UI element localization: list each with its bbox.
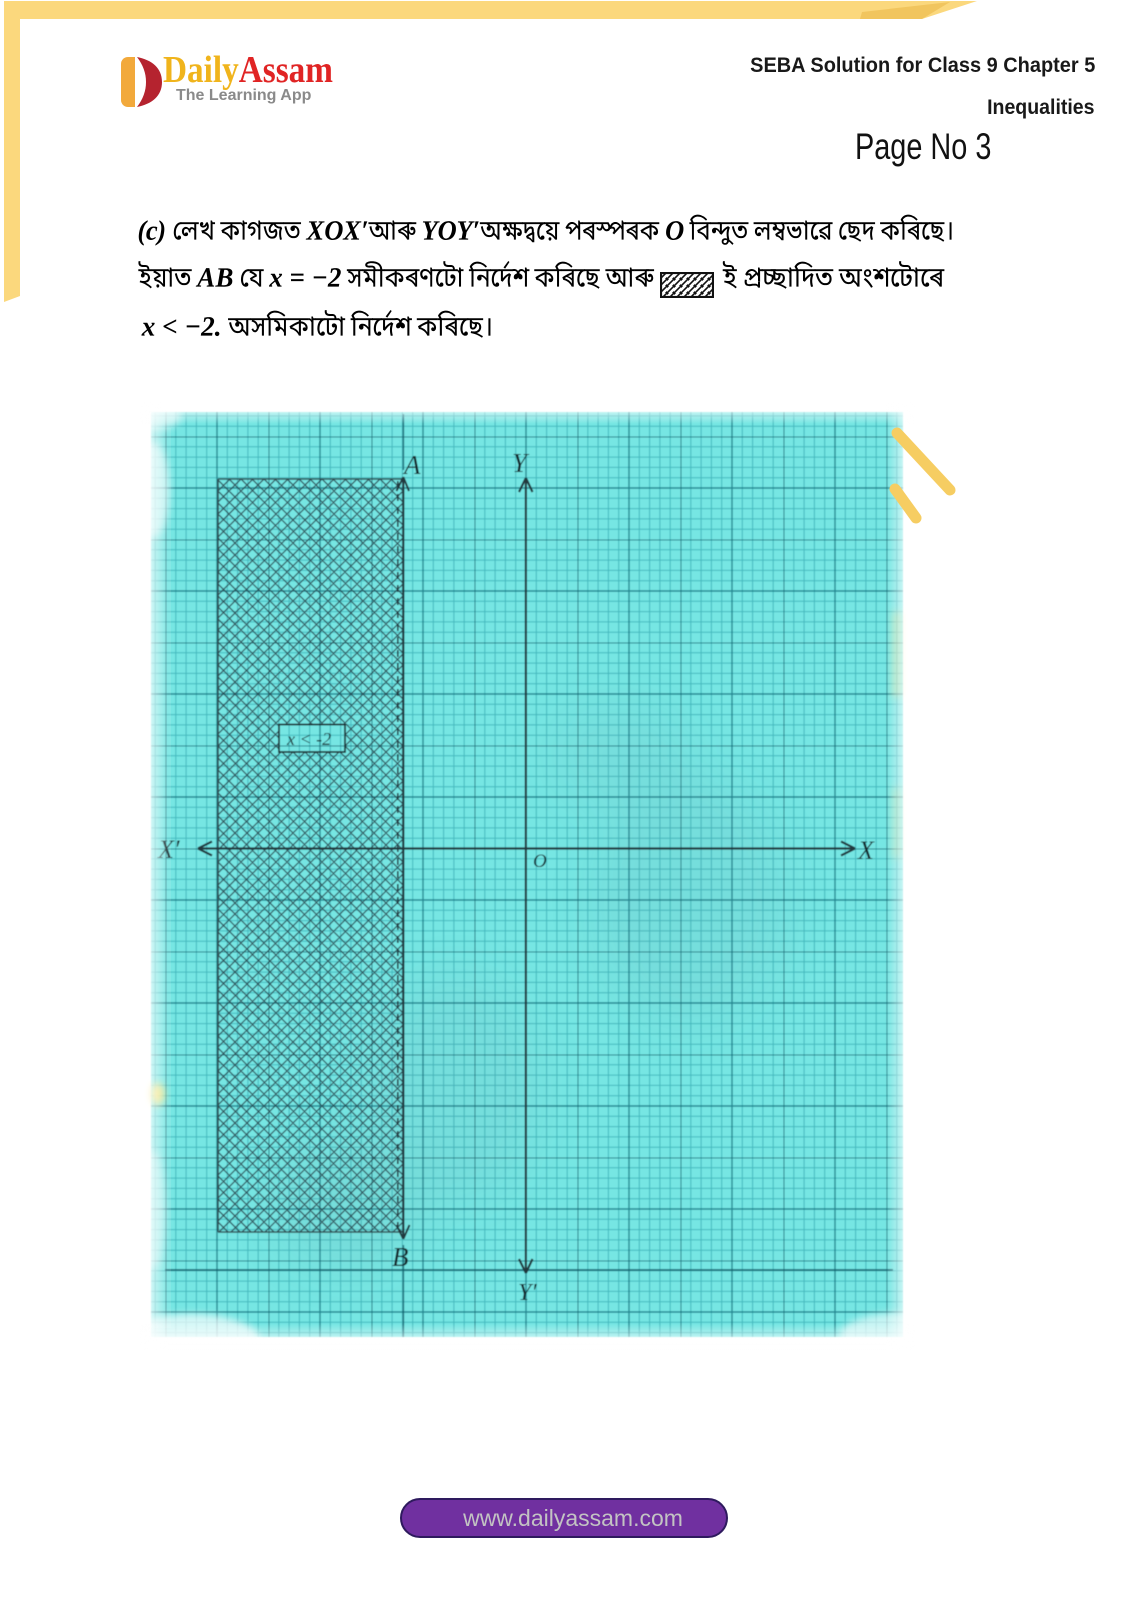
svg-text:Y′: Y′	[518, 1280, 537, 1306]
svg-text:B: B	[392, 1242, 409, 1272]
svg-text:x < -2: x < -2	[286, 729, 331, 749]
svg-text:X: X	[857, 836, 875, 865]
svg-text:A: A	[402, 450, 421, 480]
svg-text:O: O	[533, 851, 547, 872]
